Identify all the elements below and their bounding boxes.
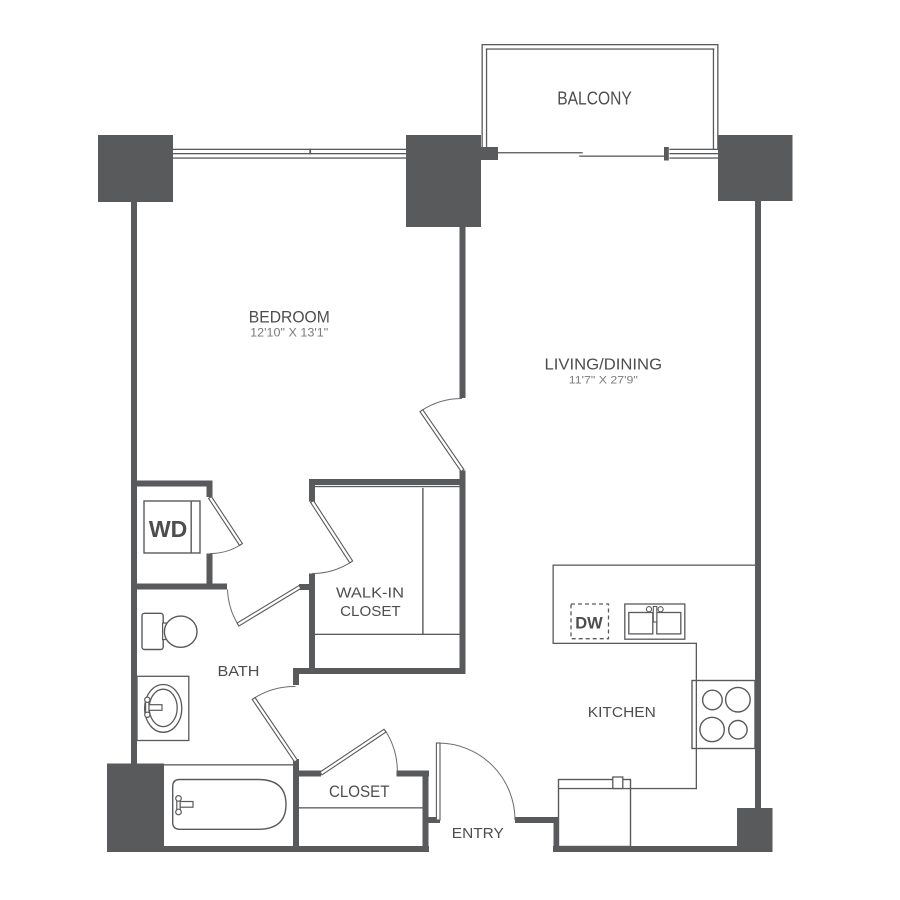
svg-text:CLOSET: CLOSET [329,783,390,801]
svg-text:BALCONY: BALCONY [557,88,632,108]
svg-text:CLOSET: CLOSET [340,603,401,620]
svg-text:DW: DW [575,613,603,632]
svg-text:WALK-IN: WALK-IN [336,585,404,602]
svg-text:KITCHEN: KITCHEN [588,704,656,721]
svg-text:12'10" X 13'1": 12'10" X 13'1" [250,325,328,339]
svg-text:BATH: BATH [218,663,260,680]
svg-text:11'7" X 27'9": 11'7" X 27'9" [569,374,638,386]
svg-text:BEDROOM: BEDROOM [249,309,330,327]
svg-text:ENTRY: ENTRY [452,825,504,842]
svg-text:WD: WD [149,516,188,542]
svg-text:LIVING/DINING: LIVING/DINING [545,357,663,374]
